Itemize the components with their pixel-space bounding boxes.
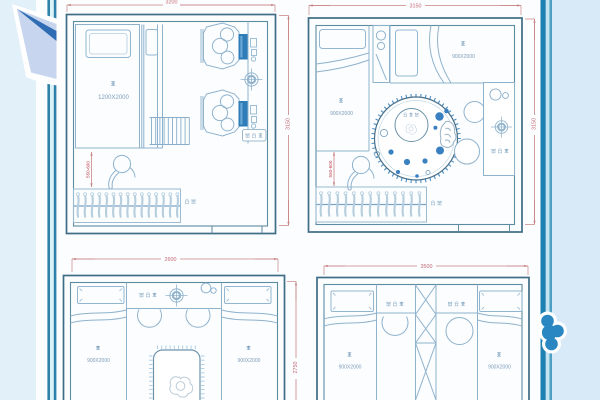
svg-text:900X2000: 900X2000 (452, 54, 475, 60)
svg-text:1200X2000: 1200X2000 (98, 95, 129, 101)
svg-text:2750: 2750 (293, 362, 299, 374)
svg-text:900X2000: 900X2000 (87, 358, 110, 364)
svg-text:3150: 3150 (286, 118, 292, 130)
svg-text:900X2000: 900X2000 (339, 365, 362, 371)
svg-text:3500: 3500 (421, 264, 433, 270)
svg-text:550-600: 550-600 (328, 160, 333, 177)
svg-text:3150: 3150 (532, 118, 538, 130)
svg-text:3150: 3150 (410, 4, 422, 10)
svg-text:900X2000: 900X2000 (488, 365, 511, 371)
svg-text:900X2000: 900X2000 (330, 111, 353, 117)
svg-text:2600: 2600 (165, 257, 177, 263)
svg-text:3200: 3200 (166, 0, 178, 6)
svg-text:550-600: 550-600 (86, 161, 91, 178)
svg-text:900X2000: 900X2000 (238, 358, 261, 364)
